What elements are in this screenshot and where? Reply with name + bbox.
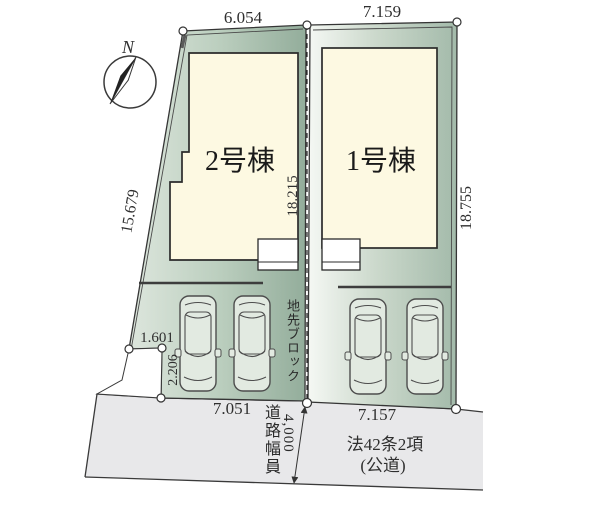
dim-cutout-width: 1.601 — [140, 330, 174, 346]
dim-plot1-top: 7.159 — [363, 2, 401, 21]
compass-north-label: N — [121, 37, 135, 57]
dim-plot2-left: 15.679 — [118, 188, 142, 234]
car-plot1-left — [345, 299, 391, 394]
dim-cutout-depth: 2.206 — [166, 354, 181, 386]
dim-plot2-top: 6.054 — [224, 8, 263, 27]
dim-plot2-right: 18.215 — [285, 175, 301, 216]
boundary-block-label: 地先ブロック — [286, 299, 299, 383]
site-plan: N 6.054 7.159 15.679 18.215 18.755 1.601… — [0, 0, 600, 508]
porch-building-1 — [322, 239, 360, 270]
road-law-label: 法42条2項 — [347, 435, 424, 454]
road-width-label: 道路幅員 — [262, 404, 278, 476]
site-plan-drawing: N 6.054 7.159 15.679 18.215 18.755 1.601… — [0, 0, 600, 508]
dim-plot2-bottom: 7.051 — [213, 399, 251, 418]
dim-plot1-bottom: 7.157 — [358, 405, 397, 424]
compass: N — [104, 37, 156, 108]
dim-plot1-right: 18.755 — [458, 186, 475, 230]
road-type-label: (公道) — [360, 456, 405, 475]
porch-building-2 — [258, 239, 298, 270]
car-plot1-right — [402, 299, 448, 394]
car-plot2-right — [229, 296, 275, 391]
building-1-label: 1号棟 — [346, 145, 416, 177]
road-width-value: 4,000 — [280, 414, 295, 453]
boundary-cutout — [97, 348, 162, 398]
building-2-label: 2号棟 — [205, 145, 275, 177]
car-plot2-left — [175, 296, 221, 391]
